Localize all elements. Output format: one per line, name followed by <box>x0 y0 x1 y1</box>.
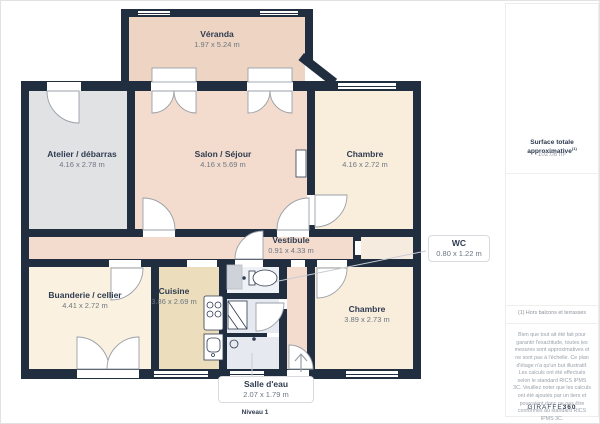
footnote: (1) Hors balcons et terrasses <box>509 310 595 316</box>
window <box>137 10 171 16</box>
window <box>337 82 397 90</box>
room-name: Véranda <box>194 30 239 40</box>
wall-segment <box>127 89 135 229</box>
door-opening <box>109 260 141 267</box>
wall-segment <box>279 259 287 369</box>
room-wc-toilet <box>227 267 279 293</box>
room-label-buanderie: Buanderie / cellier 4.41 x 2.72 m <box>48 291 121 310</box>
room-dims: 1.97 x 5.24 m <box>194 41 239 50</box>
room-name: Chambre <box>344 305 389 315</box>
door-opening <box>77 370 139 378</box>
info-sidebar: Surface totale approximative(1) 102.08 m… <box>505 3 599 417</box>
room-dims: 4.16 x 2.78 m <box>47 161 116 170</box>
wall-segment <box>305 9 313 61</box>
room-buanderie <box>29 267 151 369</box>
room-cuisine <box>159 267 219 369</box>
wall-segment <box>227 333 267 337</box>
room-label-chambre-1: Chambre 4.16 x 2.72 m <box>342 150 387 169</box>
door-opening <box>143 230 175 237</box>
room-dims: 4.16 x 2.72 m <box>342 161 387 170</box>
room-dims: 3.89 x 2.73 m <box>344 316 389 325</box>
divider <box>506 305 598 306</box>
room-label-atelier: Atelier / débarras 4.16 x 2.78 m <box>47 150 116 169</box>
room-dims: 3.86 x 2.69 m <box>151 298 196 307</box>
door-opening <box>317 260 347 267</box>
wall-segment <box>121 9 129 89</box>
door-opening <box>247 82 293 91</box>
door-opening <box>307 195 315 225</box>
brand-suffix-text: 360 <box>563 404 577 411</box>
door-opening <box>187 260 217 267</box>
wall-segment <box>227 293 279 299</box>
room-shower <box>227 299 279 333</box>
room-label-vestibule: Vestibule 0.91 x 4.33 m <box>268 236 313 255</box>
disclaimer-text-2: Les calculs ont été effectués selon le s… <box>513 370 591 424</box>
wall-segment <box>307 89 315 195</box>
room-name: Vestibule <box>268 236 313 246</box>
room-label-cuisine: Cuisine 3.86 x 2.69 m <box>151 287 196 306</box>
room-name: Atelier / débarras <box>47 150 116 160</box>
callout-dims: 0.80 x 1.22 m <box>429 249 489 258</box>
wall-segment <box>219 259 227 369</box>
room-entry-hall <box>287 259 307 369</box>
level-label: Niveau 1 <box>242 409 269 416</box>
floor-plan: Véranda 1.97 x 5.24 m Atelier / débarras… <box>1 1 503 424</box>
wall-segment <box>21 229 421 237</box>
room-dims: 4.16 x 5.69 m <box>195 161 252 170</box>
wall-segment <box>307 259 315 369</box>
window <box>259 10 299 16</box>
door-opening <box>47 82 81 91</box>
door-opening <box>279 299 287 309</box>
door-opening <box>151 82 197 91</box>
wall-segment <box>151 267 159 369</box>
window <box>345 370 399 378</box>
room-name: Buanderie / cellier <box>48 291 121 301</box>
surface-total-value: 102.08 m² <box>506 151 598 158</box>
door-opening <box>235 260 263 267</box>
room-name: Chambre <box>342 150 387 160</box>
giraffe360-logo: GIRAFFE360 <box>506 404 598 411</box>
callout-name: Salle d'eau <box>219 379 313 389</box>
door-opening <box>291 260 305 267</box>
brand-text: GIRAFFE <box>527 404 562 411</box>
room-label-veranda: Véranda 1.97 x 5.24 m <box>194 30 239 49</box>
window <box>153 370 209 378</box>
divider <box>506 323 598 324</box>
callout-wc: WC 0.80 x 1.22 m <box>428 235 490 262</box>
room-bath-lower <box>227 337 279 369</box>
divider <box>506 173 598 174</box>
room-label-chambre-2: Chambre 3.89 x 2.73 m <box>344 305 389 324</box>
room-label-salon: Salon / Séjour 4.16 x 5.69 m <box>195 150 252 169</box>
callout-name: WC <box>429 238 489 248</box>
room-name: Cuisine <box>151 287 196 297</box>
room-dims: 0.91 x 4.33 m <box>268 247 313 256</box>
room-closet <box>361 237 413 259</box>
room-name: Salon / Séjour <box>195 150 252 160</box>
floor-plan-page: Véranda 1.97 x 5.24 m Atelier / débarras… <box>0 0 600 424</box>
door-opening <box>355 241 361 255</box>
callout-dims: 2.07 x 1.79 m <box>219 390 313 399</box>
disclaimer-text-1: Bien que tout ait été fait pour garantir… <box>513 332 591 370</box>
callout-salle-deau: Salle d'eau 2.07 x 1.79 m <box>218 376 314 403</box>
room-dims: 4.41 x 2.72 m <box>48 302 121 311</box>
